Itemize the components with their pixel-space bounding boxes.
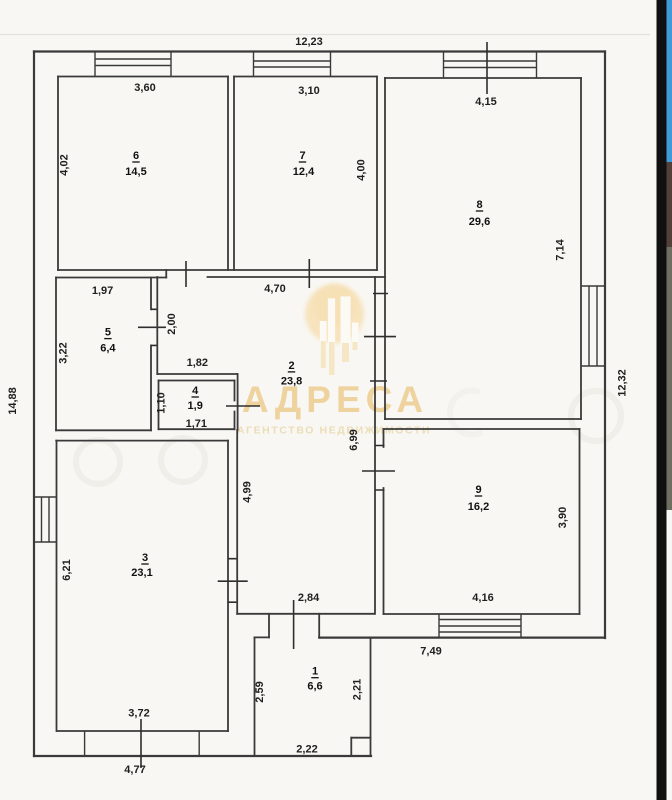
svg-text:8: 8 [476, 199, 482, 211]
svg-text:3,22: 3,22 [58, 342, 70, 363]
svg-text:АГЕНТСТВО НЕДВИЖИМОСТИ: АГЕНТСТВО НЕДВИЖИМОСТИ [237, 425, 431, 437]
svg-text:5: 5 [105, 327, 111, 339]
svg-text:7: 7 [299, 150, 305, 162]
svg-text:6,6: 6,6 [307, 681, 322, 693]
svg-text:1,82: 1,82 [187, 357, 208, 369]
svg-text:23,1: 23,1 [131, 567, 152, 579]
svg-text:1,9: 1,9 [188, 400, 203, 412]
svg-text:АДРЕСА: АДРЕСА [242, 379, 428, 420]
svg-text:2,00: 2,00 [166, 313, 178, 334]
svg-text:7,49: 7,49 [420, 646, 441, 658]
svg-text:2: 2 [289, 360, 295, 372]
svg-text:12,32: 12,32 [617, 369, 629, 397]
svg-text:4,70: 4,70 [264, 283, 285, 295]
svg-text:3,90: 3,90 [557, 507, 569, 528]
svg-text:2,21: 2,21 [352, 679, 364, 700]
svg-text:4,15: 4,15 [475, 96, 496, 108]
svg-text:29,6: 29,6 [469, 216, 490, 228]
svg-text:4,99: 4,99 [242, 481, 254, 502]
svg-text:3,60: 3,60 [134, 82, 155, 94]
svg-text:1,10: 1,10 [155, 392, 167, 413]
svg-text:6: 6 [133, 150, 139, 162]
svg-text:2,59: 2,59 [254, 681, 266, 702]
svg-text:1,71: 1,71 [186, 418, 207, 430]
svg-text:7,14: 7,14 [555, 238, 567, 260]
svg-text:4,02: 4,02 [59, 154, 71, 175]
svg-text:12,4: 12,4 [293, 166, 315, 178]
svg-text:4,16: 4,16 [472, 592, 493, 604]
svg-text:3,72: 3,72 [128, 708, 149, 720]
svg-text:14,88: 14,88 [7, 387, 19, 415]
svg-text:23,8: 23,8 [281, 375, 302, 387]
svg-text:2,22: 2,22 [296, 744, 317, 756]
svg-text:4,77: 4,77 [124, 764, 145, 776]
svg-text:16,2: 16,2 [468, 501, 489, 513]
svg-text:12,23: 12,23 [295, 36, 323, 48]
svg-text:1: 1 [312, 666, 318, 678]
svg-text:6,4: 6,4 [100, 343, 116, 355]
svg-text:14,5: 14,5 [125, 166, 146, 178]
svg-text:2,84: 2,84 [298, 592, 320, 604]
svg-text:6,21: 6,21 [61, 559, 73, 580]
svg-text:4,00: 4,00 [356, 159, 368, 180]
svg-text:3,10: 3,10 [298, 85, 319, 97]
svg-text:4: 4 [192, 385, 199, 397]
svg-text:9: 9 [475, 484, 481, 496]
svg-text:3: 3 [142, 552, 148, 564]
svg-text:1,97: 1,97 [92, 285, 113, 297]
svg-text:6,99: 6,99 [348, 429, 360, 450]
